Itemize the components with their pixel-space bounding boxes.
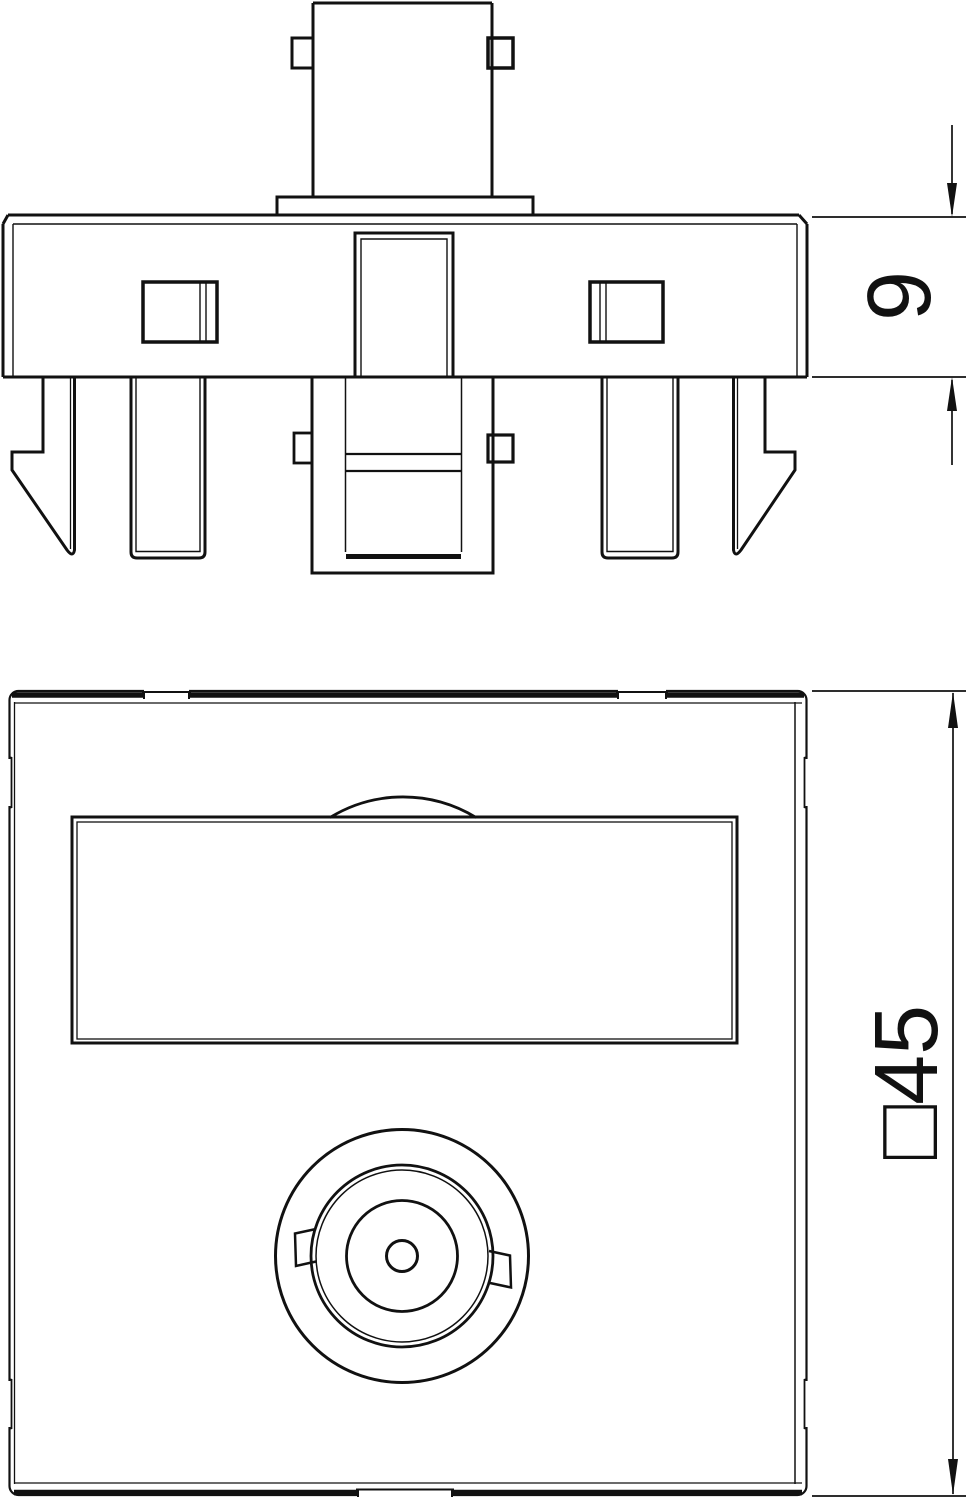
- center-slot-inner: [361, 239, 447, 377]
- side-view: 9: [3, 3, 966, 573]
- plate-outer-boundary: [10, 691, 807, 1495]
- right-claw-outline: [734, 377, 796, 554]
- socket-middle-circle: [347, 1201, 458, 1312]
- label-window-outer: [72, 817, 737, 1043]
- bnc-connector-rear: [277, 3, 533, 215]
- center-left-nub: [294, 433, 312, 463]
- dim45-arrow-down-icon: [948, 1459, 958, 1495]
- dim45-label: □45: [857, 1005, 957, 1159]
- right-square-hole-inner-lines: [600, 282, 606, 342]
- dimension-45: □45: [812, 691, 966, 1496]
- bnc-socket-front: [276, 1130, 529, 1383]
- center-body-cross-band: [346, 454, 462, 471]
- center-body-outline: [312, 377, 493, 573]
- dome-arc: [330, 797, 476, 818]
- mounting-claws-and-legs: [12, 377, 795, 573]
- right-leg-inner: [607, 377, 673, 552]
- bnc-left-nub: [292, 38, 313, 68]
- mounting-plate-section: [3, 215, 807, 377]
- socket-ring-outer: [311, 1165, 493, 1347]
- label-window-inner: [77, 822, 732, 1039]
- right-leg-outline: [602, 377, 678, 558]
- right-square-hole: [590, 282, 663, 342]
- socket-ring-inner: [316, 1170, 488, 1342]
- dim9-arrow-down-icon: [947, 183, 957, 217]
- label-window: [72, 797, 737, 1043]
- drawing-canvas: 9: [0, 0, 974, 1500]
- center-body-inner-walls: [346, 377, 462, 552]
- dim9-label: 9: [850, 271, 950, 321]
- socket-outer-circle: [276, 1130, 529, 1383]
- dim45-arrow-up-icon: [948, 692, 958, 728]
- plate-inner-edge-lines: [13, 224, 797, 377]
- center-slot-outer: [355, 233, 453, 377]
- left-square-hole-inner-lines: [200, 282, 206, 342]
- left-leg-inner: [136, 377, 200, 552]
- socket-center-pin: [387, 1241, 418, 1272]
- top-notch-right-mask: [618, 689, 666, 700]
- cover-plate-outline: [7, 689, 809, 1498]
- plate-outer-sides: [3, 224, 807, 377]
- dim9-arrow-up-icon: [947, 377, 957, 411]
- bnc-body-sides: [313, 3, 492, 197]
- left-claw-outline: [12, 377, 75, 554]
- front-view: □45: [7, 689, 966, 1498]
- top-notch-left-mask: [144, 689, 189, 700]
- technical-drawing-sheet: 9: [0, 0, 974, 1500]
- bnc-flange: [277, 197, 533, 215]
- left-leg-outline: [131, 377, 205, 558]
- dimension-9: 9: [812, 125, 966, 465]
